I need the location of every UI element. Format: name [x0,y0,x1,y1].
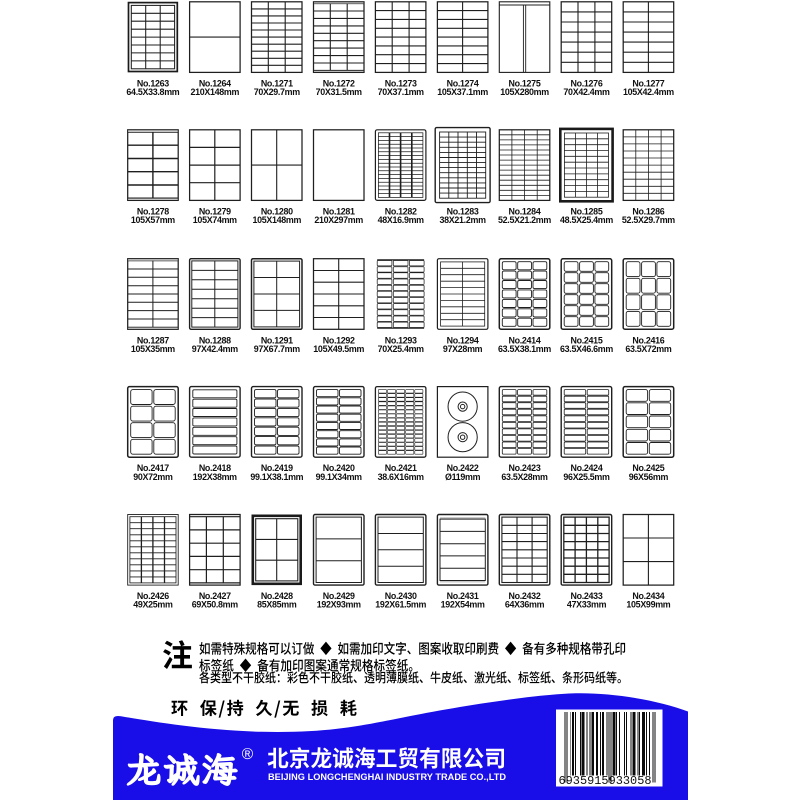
svg-text:99.1X38.1mm: 99.1X38.1mm [250,472,303,482]
svg-text:192X93mm: 192X93mm [317,600,361,610]
svg-text:38.6X16mm: 38.6X16mm [378,472,425,482]
svg-text:38X21.2mm: 38X21.2mm [440,215,487,225]
svg-text:48.5X25.4mm: 48.5X25.4mm [560,215,613,225]
svg-text:210X297mm: 210X297mm [314,215,363,225]
svg-text:105X148mm: 105X148mm [252,215,301,225]
svg-text:Ø119mm: Ø119mm [445,472,481,482]
svg-text:192X38mm: 192X38mm [193,472,237,482]
svg-text:97X42.4mm: 97X42.4mm [192,344,239,354]
svg-text:105X49.5mm: 105X49.5mm [313,344,364,354]
svg-text:105X99mm: 105X99mm [626,600,670,610]
svg-text:48X16.9mm: 48X16.9mm [378,215,425,225]
svg-text:105X37.1mm: 105X37.1mm [437,87,488,97]
svg-text:63.5X72mm: 63.5X72mm [625,344,672,354]
svg-text:52.5X21.2mm: 52.5X21.2mm [498,215,551,225]
svg-text:96X56mm: 96X56mm [629,472,669,482]
svg-text:52.5X29.7mm: 52.5X29.7mm [622,215,675,225]
svg-text:BEIJING LONGCHENGHAI INDUSTRY: BEIJING LONGCHENGHAI INDUSTRY TRADE CO.,… [268,772,506,782]
svg-text:105X42.4mm: 105X42.4mm [623,87,674,97]
svg-text:70X29.7mm: 70X29.7mm [254,87,301,97]
svg-text:105X57mm: 105X57mm [131,215,175,225]
svg-text:64.5X33.8mm: 64.5X33.8mm [126,87,179,97]
svg-text:49X25mm: 49X25mm [133,600,173,610]
svg-text:105X35mm: 105X35mm [131,344,175,354]
svg-text:63.5X38.1mm: 63.5X38.1mm [498,344,551,354]
svg-text:47X33mm: 47X33mm [567,600,607,610]
svg-text:97X67.7mm: 97X67.7mm [254,344,301,354]
svg-text:63.5X28mm: 63.5X28mm [501,472,548,482]
svg-text:6935915933058: 6935915933058 [559,775,652,788]
svg-text:69X50.8mm: 69X50.8mm [192,600,239,610]
svg-text:®: ® [242,746,254,763]
svg-text:70X37.1mm: 70X37.1mm [378,87,425,97]
svg-text:70X31.5mm: 70X31.5mm [316,87,363,97]
svg-text:64X36mm: 64X36mm [505,600,545,610]
svg-text:210X148mm: 210X148mm [190,87,239,97]
svg-text:85X85mm: 85X85mm [257,600,297,610]
svg-text:70X25.4mm: 70X25.4mm [378,344,425,354]
svg-text:63.5X46.6mm: 63.5X46.6mm [560,344,613,354]
svg-text:192X61.5mm: 192X61.5mm [375,600,426,610]
svg-text:192X54mm: 192X54mm [441,600,485,610]
svg-text:90X72mm: 90X72mm [133,472,173,482]
svg-text:97X28mm: 97X28mm [443,344,483,354]
svg-text:70X42.4mm: 70X42.4mm [563,87,610,97]
svg-text:105X280mm: 105X280mm [500,87,549,97]
svg-text:105X74mm: 105X74mm [193,215,237,225]
svg-text:99.1X34mm: 99.1X34mm [316,472,363,482]
svg-text:96X25.5mm: 96X25.5mm [563,472,610,482]
